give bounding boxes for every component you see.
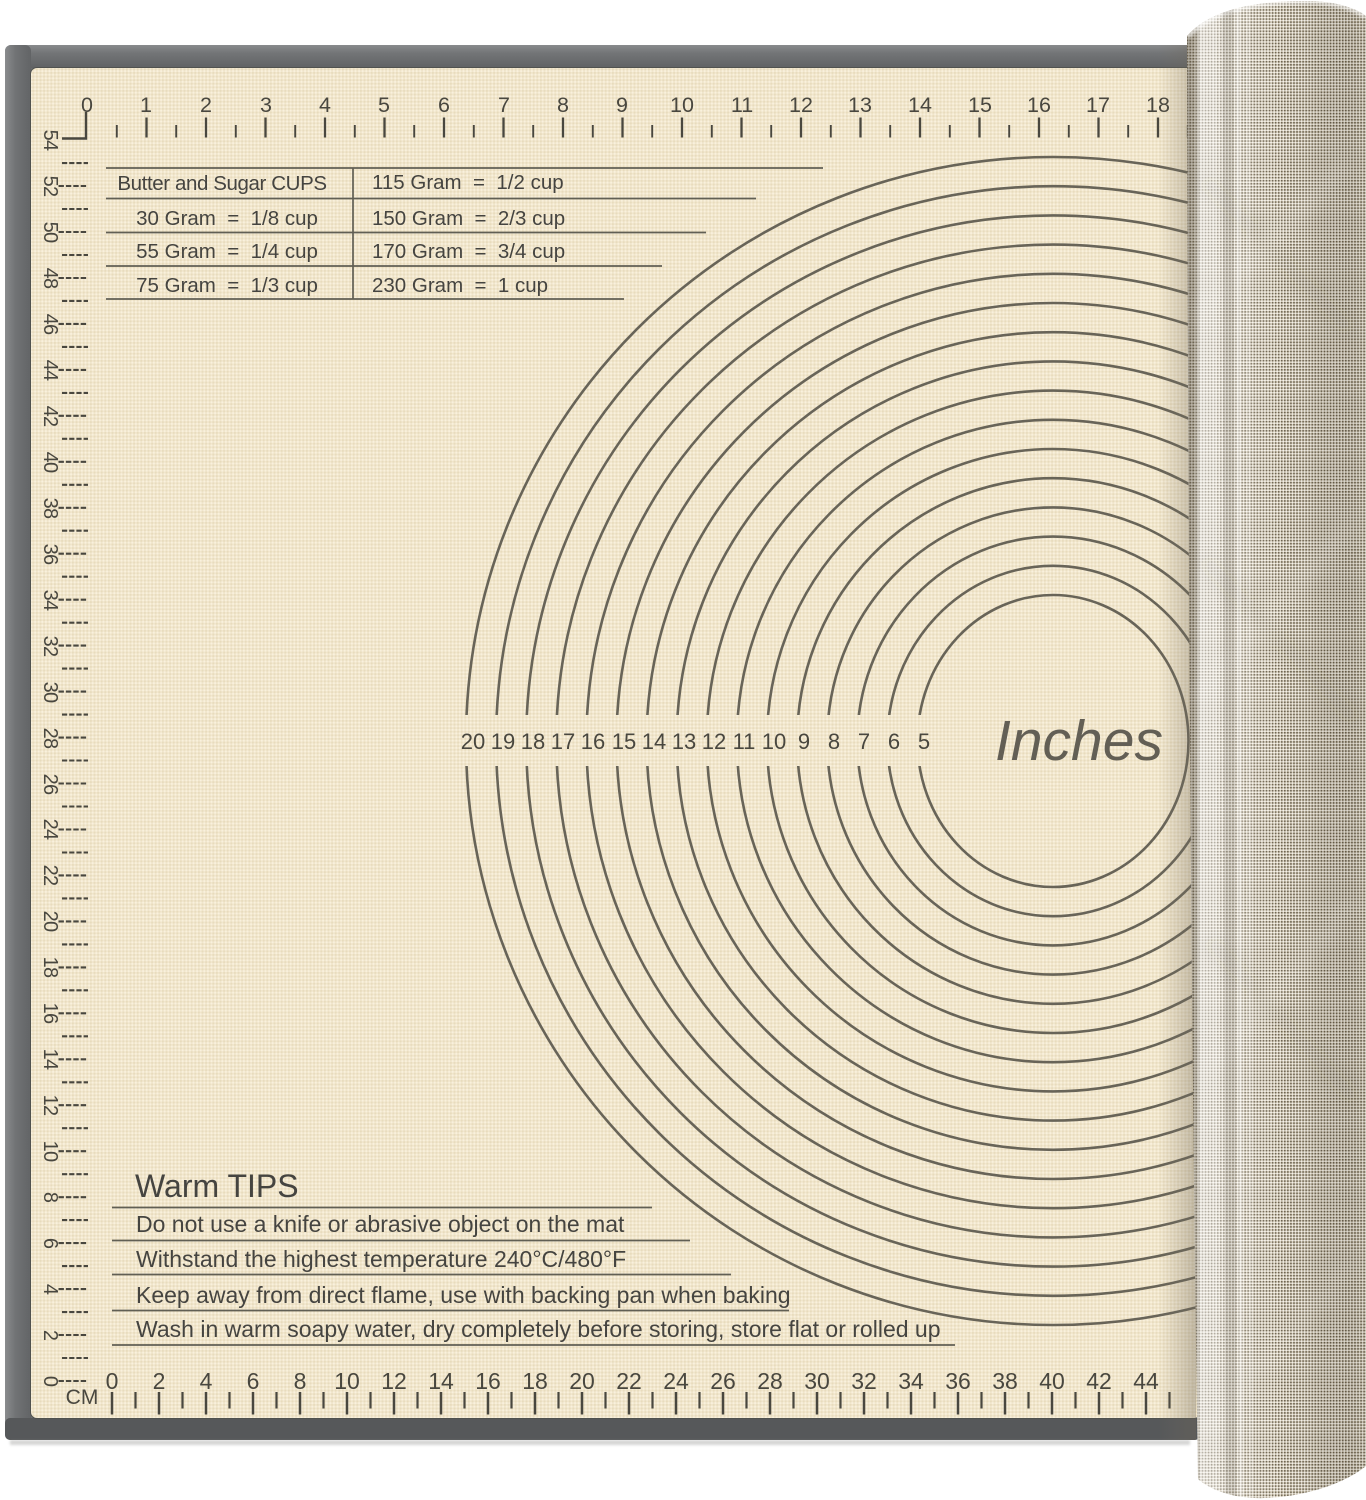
svg-text:6: 6: [888, 729, 900, 754]
svg-text:16: 16: [1027, 93, 1051, 117]
svg-text:8: 8: [294, 1368, 307, 1394]
svg-text:12: 12: [39, 1095, 61, 1116]
svg-text:18: 18: [522, 1368, 548, 1394]
svg-text:Inches: Inches: [995, 709, 1163, 773]
svg-text:22: 22: [616, 1368, 642, 1394]
svg-text:Butter and Sugar CUPS: Butter and Sugar CUPS: [117, 172, 326, 195]
svg-text:16: 16: [39, 1003, 61, 1024]
svg-text:12: 12: [789, 93, 813, 117]
svg-text:17: 17: [1086, 93, 1110, 117]
svg-text:5: 5: [378, 93, 390, 117]
svg-text:8: 8: [39, 1192, 61, 1203]
svg-text:42: 42: [1086, 1368, 1112, 1394]
svg-text:3: 3: [260, 93, 272, 117]
svg-text:10: 10: [334, 1368, 360, 1394]
svg-text:20: 20: [39, 911, 61, 932]
svg-text:44: 44: [1133, 1368, 1159, 1394]
svg-text:26: 26: [39, 774, 61, 795]
svg-text:6: 6: [39, 1238, 61, 1249]
svg-text:40: 40: [39, 452, 61, 473]
svg-text:16: 16: [475, 1368, 501, 1394]
svg-text:34: 34: [898, 1368, 924, 1394]
svg-text:28: 28: [757, 1368, 783, 1394]
svg-text:7: 7: [858, 729, 870, 754]
svg-text:46: 46: [39, 314, 61, 335]
svg-text:24: 24: [39, 819, 61, 840]
svg-text:6: 6: [247, 1368, 260, 1394]
svg-text:19: 19: [491, 729, 515, 754]
svg-text:Withstand the highest temperat: Withstand the highest temperature 240°C/…: [136, 1246, 626, 1272]
svg-text:11: 11: [731, 93, 753, 117]
svg-text:150 Gram = 2/3 cup: 150 Gram = 2/3 cup: [372, 207, 565, 230]
svg-text:12: 12: [381, 1368, 407, 1394]
svg-text:30: 30: [39, 682, 61, 703]
svg-text:0: 0: [39, 1376, 61, 1387]
svg-text:2: 2: [39, 1330, 61, 1341]
svg-text:8: 8: [557, 93, 569, 117]
svg-text:38: 38: [992, 1368, 1018, 1394]
svg-text:18: 18: [39, 957, 61, 978]
svg-text:170 Gram = 3/4 cup: 170 Gram = 3/4 cup: [372, 240, 565, 263]
svg-text:10: 10: [39, 1141, 61, 1162]
svg-text:44: 44: [39, 360, 61, 381]
svg-text:38: 38: [39, 498, 61, 519]
svg-text:11: 11: [733, 729, 756, 754]
svg-text:2: 2: [200, 93, 212, 117]
svg-text:17: 17: [551, 729, 575, 754]
svg-text:10: 10: [670, 93, 694, 117]
svg-text:13: 13: [672, 729, 696, 754]
svg-text:22: 22: [39, 865, 61, 886]
svg-text:13: 13: [848, 93, 872, 117]
svg-text:34: 34: [39, 590, 61, 611]
svg-text:8: 8: [828, 729, 840, 754]
svg-text:50: 50: [39, 222, 61, 243]
svg-text:14: 14: [908, 93, 932, 117]
svg-text:15: 15: [612, 729, 636, 754]
svg-text:36: 36: [945, 1368, 971, 1394]
svg-text:16: 16: [581, 729, 605, 754]
svg-text:14: 14: [39, 1049, 61, 1070]
svg-text:20: 20: [461, 729, 485, 754]
svg-text:7: 7: [498, 93, 510, 117]
svg-text:4: 4: [200, 1368, 213, 1394]
svg-text:6: 6: [438, 93, 450, 117]
svg-text:Keep away from direct flame, u: Keep away from direct flame, use with ba…: [136, 1282, 791, 1308]
svg-text:14: 14: [642, 729, 666, 754]
svg-text:4: 4: [39, 1284, 61, 1295]
svg-text:30: 30: [804, 1368, 830, 1394]
svg-text:5: 5: [918, 729, 930, 754]
svg-text:115 Gram = 1/2 cup: 115 Gram = 1/2 cup: [372, 171, 564, 194]
svg-text:14: 14: [428, 1368, 454, 1394]
svg-text:30 Gram = 1/8 cup: 30 Gram = 1/8 cup: [136, 207, 318, 230]
svg-text:32: 32: [39, 636, 61, 657]
svg-text:48: 48: [39, 268, 61, 289]
svg-text:26: 26: [710, 1368, 736, 1394]
svg-text:230 Gram = 1 cup: 230 Gram = 1 cup: [372, 274, 548, 297]
svg-text:CM: CM: [66, 1386, 99, 1409]
svg-text:Do not use a knife or abrasive: Do not use a knife or abrasive object on…: [136, 1211, 625, 1237]
svg-text:55 Gram = 1/4 cup: 55 Gram = 1/4 cup: [136, 240, 318, 263]
svg-text:18: 18: [521, 729, 545, 754]
svg-text:1: 1: [140, 93, 152, 117]
svg-text:54: 54: [39, 130, 61, 151]
svg-text:36: 36: [39, 544, 61, 565]
svg-text:52: 52: [39, 176, 61, 197]
svg-text:Warm TIPS: Warm TIPS: [135, 1168, 299, 1204]
svg-text:28: 28: [39, 728, 61, 749]
svg-text:20: 20: [569, 1368, 595, 1394]
svg-text:9: 9: [616, 93, 628, 117]
svg-text:Wash in warm soapy water, dry: Wash in warm soapy water, dry completely…: [136, 1316, 941, 1342]
svg-text:15: 15: [968, 93, 992, 117]
svg-text:4: 4: [319, 93, 331, 117]
svg-text:24: 24: [663, 1368, 689, 1394]
svg-text:10: 10: [762, 729, 786, 754]
svg-text:12: 12: [702, 729, 726, 754]
svg-text:2: 2: [153, 1368, 166, 1394]
svg-text:75 Gram = 1/3 cup: 75 Gram = 1/3 cup: [136, 274, 318, 297]
svg-text:0: 0: [106, 1368, 119, 1394]
svg-text:32: 32: [851, 1368, 877, 1394]
svg-text:42: 42: [39, 406, 61, 427]
svg-text:40: 40: [1039, 1368, 1065, 1394]
svg-text:9: 9: [798, 729, 810, 754]
